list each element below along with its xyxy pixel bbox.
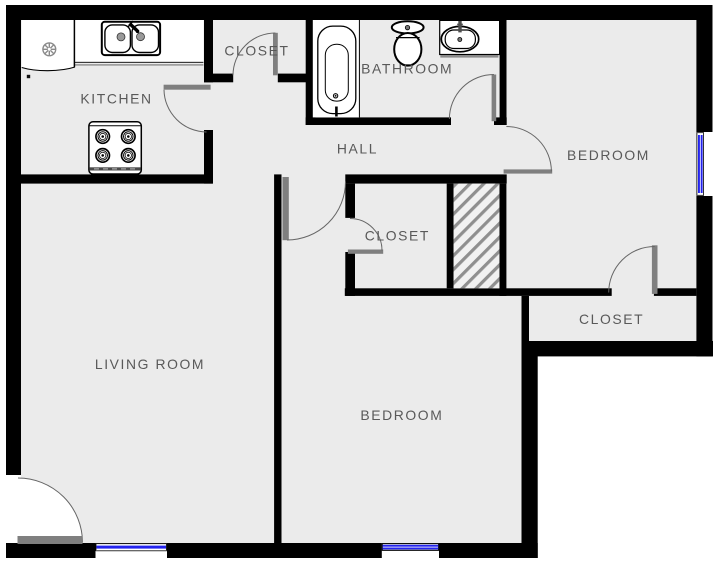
svg-text:BEDROOM: BEDROOM [567,147,650,163]
svg-text:CLOSET: CLOSET [579,311,644,327]
svg-text:CLOSET: CLOSET [224,43,289,59]
svg-text:KITCHEN: KITCHEN [80,90,152,106]
svg-text:LIVING ROOM: LIVING ROOM [95,356,205,372]
svg-text:HALL: HALL [337,141,378,157]
svg-text:BATHROOM: BATHROOM [361,61,453,77]
svg-text:BEDROOM: BEDROOM [360,407,443,423]
svg-text:CLOSET: CLOSET [365,228,430,244]
